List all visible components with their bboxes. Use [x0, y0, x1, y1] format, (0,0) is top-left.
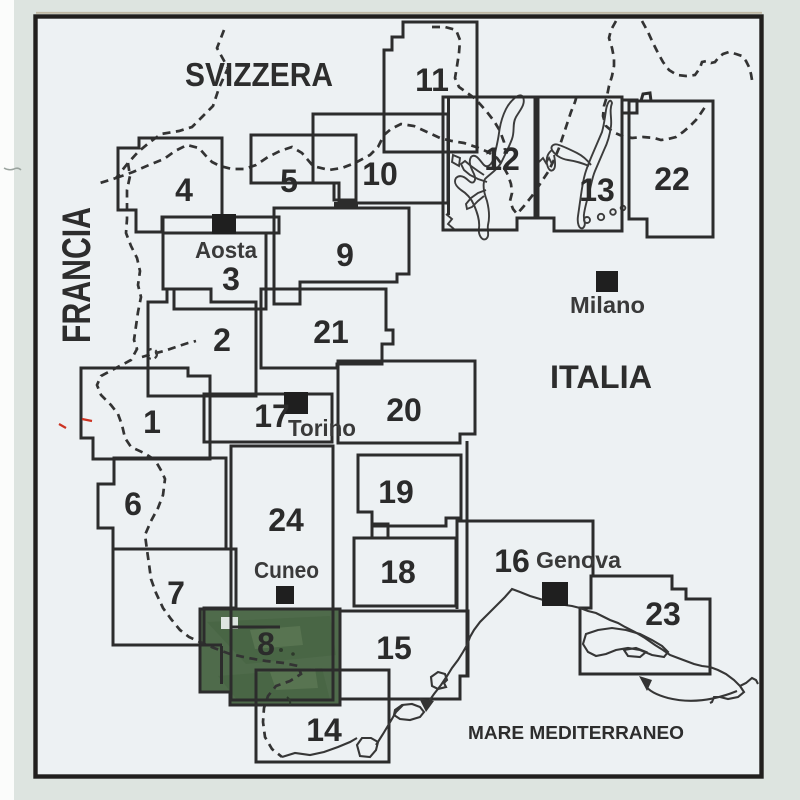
svg-text:7: 7: [167, 575, 185, 611]
svg-text:4: 4: [175, 172, 193, 208]
svg-text:5: 5: [280, 163, 298, 199]
svg-text:Cuneo: Cuneo: [254, 557, 319, 583]
svg-text:20: 20: [386, 392, 422, 428]
svg-text:MARE MEDITERRANEO: MARE MEDITERRANEO: [468, 723, 684, 743]
svg-text:9: 9: [336, 237, 354, 273]
svg-text:12: 12: [484, 141, 520, 177]
svg-text:6: 6: [124, 486, 142, 522]
svg-text:15: 15: [376, 630, 412, 666]
svg-text:23: 23: [645, 596, 681, 632]
svg-text:2: 2: [213, 322, 231, 358]
svg-text:Milano: Milano: [570, 292, 645, 318]
svg-text:22: 22: [654, 161, 690, 197]
svg-text:10: 10: [362, 156, 398, 192]
svg-text:24: 24: [268, 502, 304, 538]
svg-text:11: 11: [415, 62, 449, 98]
svg-text:16: 16: [494, 543, 530, 579]
svg-text:13: 13: [579, 172, 615, 208]
svg-text:FRANCIA: FRANCIA: [55, 207, 99, 343]
svg-text:Genova: Genova: [536, 547, 621, 573]
svg-text:1: 1: [143, 404, 161, 440]
svg-text:14: 14: [306, 712, 342, 748]
svg-text:18: 18: [380, 554, 416, 590]
svg-text:Torino: Torino: [288, 415, 356, 441]
svg-text:19: 19: [378, 474, 414, 510]
svg-text:8: 8: [257, 626, 275, 662]
svg-text:17: 17: [254, 398, 290, 434]
svg-text:ITALIA: ITALIA: [550, 359, 652, 395]
svg-text:3: 3: [222, 261, 240, 297]
svg-text:21: 21: [313, 314, 349, 350]
svg-text:SVIZZERA: SVIZZERA: [185, 56, 333, 93]
svg-text:Aosta: Aosta: [195, 237, 257, 263]
